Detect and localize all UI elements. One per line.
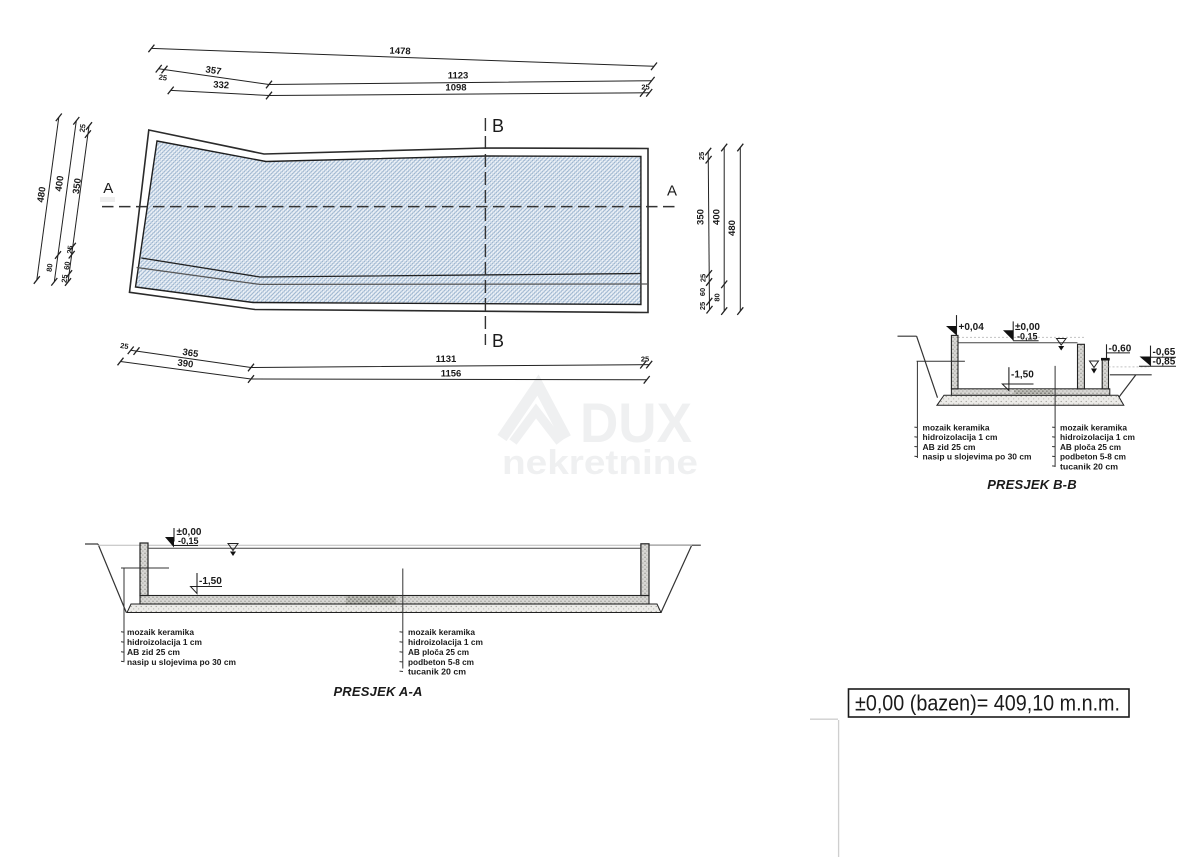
svg-text:tucanik 20 cm: tucanik 20 cm bbox=[408, 667, 466, 677]
svg-text:-1,50: -1,50 bbox=[199, 576, 222, 587]
svg-text:AB zid 25 cm: AB zid 25 cm bbox=[923, 442, 976, 452]
svg-text:hidroizolacija 1 cm: hidroizolacija 1 cm bbox=[923, 432, 998, 442]
svg-text:1478: 1478 bbox=[389, 46, 411, 58]
svg-text:80: 80 bbox=[713, 293, 722, 301]
svg-text:60: 60 bbox=[698, 288, 707, 296]
svg-text:350: 350 bbox=[71, 178, 84, 195]
svg-text:AB ploča 25 cm: AB ploča 25 cm bbox=[408, 647, 469, 657]
svg-text:+0,04: +0,04 bbox=[959, 322, 985, 333]
svg-text:25: 25 bbox=[641, 83, 649, 92]
svg-text:25: 25 bbox=[697, 152, 706, 160]
svg-text:1098: 1098 bbox=[445, 83, 466, 94]
svg-text:60: 60 bbox=[62, 261, 72, 270]
svg-text:25: 25 bbox=[78, 123, 88, 132]
svg-text:podbeton 5-8 cm: podbeton 5-8 cm bbox=[408, 657, 474, 667]
svg-text:25: 25 bbox=[698, 302, 707, 310]
svg-text:B: B bbox=[492, 116, 504, 136]
svg-text:AB ploča 25 cm: AB ploča 25 cm bbox=[1060, 442, 1121, 452]
svg-text:A: A bbox=[103, 180, 113, 197]
svg-text:hidroizolacija 1 cm: hidroizolacija 1 cm bbox=[408, 637, 483, 647]
svg-text:-0,15: -0,15 bbox=[1017, 332, 1038, 342]
svg-text:nasip u slojevima po 30 cm: nasip u slojevima po 30 cm bbox=[127, 657, 236, 667]
svg-text:hidroizolacija 1 cm: hidroizolacija 1 cm bbox=[127, 637, 202, 647]
svg-text:480: 480 bbox=[727, 220, 738, 236]
svg-text:400: 400 bbox=[712, 209, 723, 225]
svg-text:mozaik keramika: mozaik keramika bbox=[923, 423, 990, 433]
svg-text:350: 350 bbox=[696, 209, 707, 225]
svg-text:A: A bbox=[667, 183, 677, 200]
svg-text:25: 25 bbox=[641, 355, 649, 364]
svg-text:332: 332 bbox=[213, 80, 229, 92]
svg-text:podbeton 5-8 cm: podbeton 5-8 cm bbox=[1060, 452, 1126, 462]
svg-text:mozaik keramika: mozaik keramika bbox=[408, 627, 475, 637]
svg-text:390: 390 bbox=[177, 358, 194, 371]
svg-text:tucanik 20 cm: tucanik 20 cm bbox=[1060, 461, 1118, 471]
svg-text:25: 25 bbox=[60, 274, 70, 283]
svg-text:PRESJEK A-A: PRESJEK A-A bbox=[333, 684, 422, 699]
svg-text:mozaik keramika: mozaik keramika bbox=[127, 627, 194, 637]
svg-text:1131: 1131 bbox=[436, 354, 457, 365]
svg-text:mozaik keramika: mozaik keramika bbox=[1060, 423, 1127, 433]
svg-text:480: 480 bbox=[36, 186, 49, 203]
svg-text:hidroizolacija 1 cm: hidroizolacija 1 cm bbox=[1060, 432, 1135, 442]
svg-text:80: 80 bbox=[45, 263, 55, 272]
svg-text:25: 25 bbox=[65, 245, 75, 254]
svg-text:25: 25 bbox=[120, 341, 130, 351]
svg-text:-1,50: -1,50 bbox=[1011, 370, 1034, 381]
svg-text:±0,00 (bazen)= 409,10 m.n.m.: ±0,00 (bazen)= 409,10 m.n.m. bbox=[855, 691, 1120, 716]
svg-text:1123: 1123 bbox=[448, 71, 469, 82]
svg-text:25: 25 bbox=[158, 72, 168, 82]
svg-text:nasip u slojevima po 30 cm: nasip u slojevima po 30 cm bbox=[923, 452, 1032, 462]
svg-text:PRESJEK B-B: PRESJEK B-B bbox=[987, 477, 1077, 492]
svg-text:nekretnine: nekretnine bbox=[502, 444, 698, 482]
svg-text:B: B bbox=[492, 331, 504, 351]
svg-text:1156: 1156 bbox=[441, 368, 462, 379]
svg-text:AB zid 25 cm: AB zid 25 cm bbox=[127, 647, 180, 657]
svg-text:400: 400 bbox=[54, 175, 67, 192]
svg-text:-0,15: -0,15 bbox=[178, 536, 199, 546]
svg-text:25: 25 bbox=[699, 274, 708, 282]
